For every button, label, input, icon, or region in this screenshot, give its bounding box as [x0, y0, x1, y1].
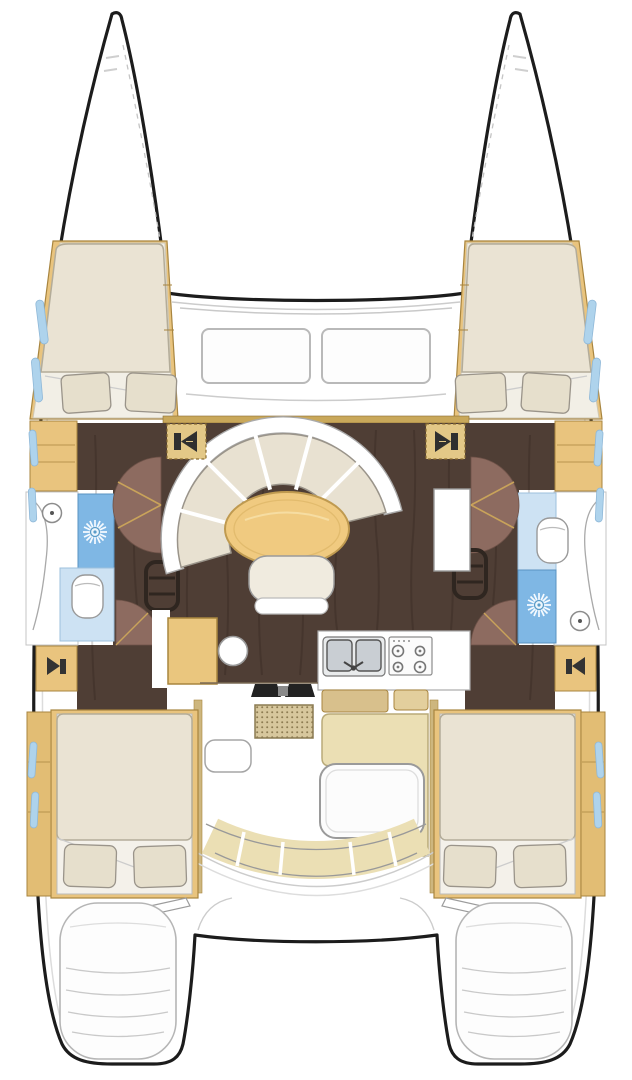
shower-drain-icon — [527, 593, 551, 617]
salon-speaker-port — [167, 424, 206, 459]
pillow — [63, 844, 116, 888]
pillow — [513, 844, 566, 888]
dinette-table — [225, 492, 349, 566]
chart-table — [168, 618, 217, 684]
vberth-mattress-port — [41, 244, 170, 372]
berth-mattress-starboard — [440, 714, 575, 840]
salon-speaker-starboard — [426, 424, 465, 459]
forward-cabin-port — [30, 241, 178, 419]
pillow — [455, 373, 507, 414]
shower-drain-icon — [83, 520, 107, 544]
coachroof-window-port — [202, 329, 310, 383]
shelf-speaker-port — [36, 646, 77, 691]
pillow — [133, 845, 186, 888]
salon-bench — [249, 556, 334, 614]
toilet-icon — [537, 518, 568, 563]
floorplan-drawing — [0, 0, 632, 1080]
berth-mattress-port — [57, 714, 192, 840]
vberth-mattress-starboard — [462, 244, 591, 372]
stern-platform-starboard — [456, 903, 572, 1059]
cabinet — [434, 489, 470, 571]
pillow — [521, 372, 572, 413]
stool — [219, 637, 248, 666]
galley — [318, 631, 470, 690]
galley-stove — [389, 637, 432, 675]
pillow — [61, 372, 112, 413]
cockpit-module — [394, 690, 428, 710]
head-port — [26, 492, 114, 645]
wardrobe-starboard — [581, 712, 605, 896]
aft-cabin-port — [27, 710, 198, 898]
aft-cabin-starboard — [434, 710, 605, 898]
toilet-icon — [72, 575, 103, 618]
head-starboard — [518, 492, 606, 645]
forward-cabin-starboard — [454, 241, 602, 419]
pillow — [443, 845, 496, 888]
cockpit-module — [322, 690, 388, 712]
coachroof-window-starboard — [322, 329, 430, 383]
shelf-speaker-starboard — [555, 646, 596, 691]
pillow — [125, 373, 177, 414]
wardrobe-port — [27, 712, 51, 896]
cockpit-side-table — [205, 740, 251, 772]
catamaran-floorplan — [0, 0, 632, 1080]
stern-platform-port — [60, 903, 176, 1059]
galley-sink — [323, 637, 385, 676]
cockpit-mat — [255, 705, 313, 738]
